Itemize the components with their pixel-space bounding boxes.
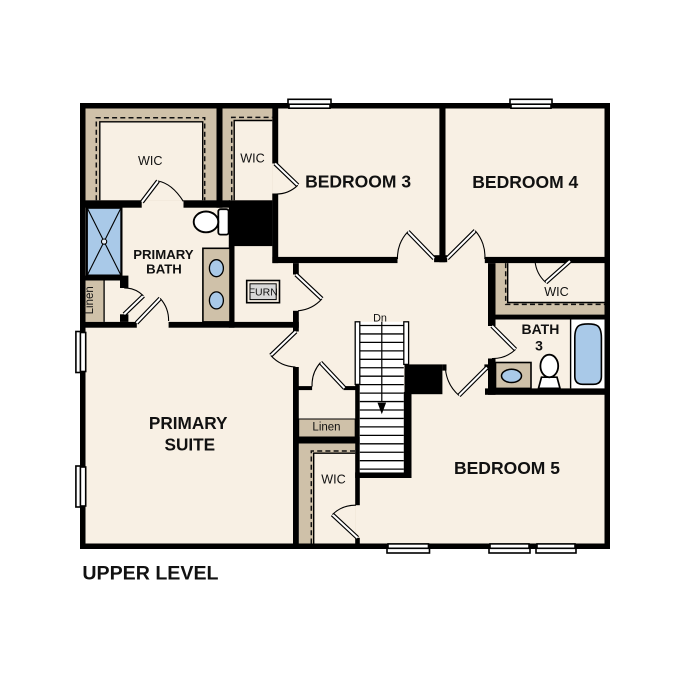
svg-text:Linen: Linen bbox=[312, 422, 340, 434]
svg-text:PRIMARY: PRIMARY bbox=[149, 413, 228, 433]
svg-text:BATH: BATH bbox=[521, 321, 559, 337]
svg-text:UPPER LEVEL: UPPER LEVEL bbox=[82, 563, 218, 585]
svg-text:BATH: BATH bbox=[146, 262, 182, 277]
svg-text:PRIMARY: PRIMARY bbox=[133, 247, 194, 262]
svg-text:Dn: Dn bbox=[373, 312, 387, 324]
svg-text:WIC: WIC bbox=[321, 472, 345, 486]
svg-text:FURN: FURN bbox=[249, 286, 278, 298]
svg-text:WIC: WIC bbox=[240, 151, 264, 165]
svg-text:BEDROOM 4: BEDROOM 4 bbox=[472, 172, 578, 192]
svg-text:BEDROOM 3: BEDROOM 3 bbox=[305, 172, 411, 192]
svg-text:WIC: WIC bbox=[544, 285, 568, 299]
svg-text:3: 3 bbox=[535, 337, 543, 353]
svg-text:BEDROOM 5: BEDROOM 5 bbox=[454, 458, 560, 478]
svg-text:WIC: WIC bbox=[138, 154, 162, 168]
svg-text:Linen: Linen bbox=[84, 286, 96, 314]
svg-text:SUITE: SUITE bbox=[164, 435, 215, 455]
